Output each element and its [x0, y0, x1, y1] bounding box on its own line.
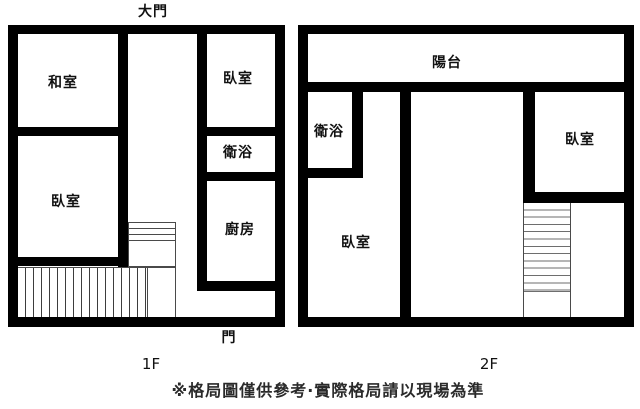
1f-room-label-kitchen: 廚房	[225, 219, 255, 239]
1f-stair-upper-run	[128, 222, 176, 267]
2f-outer-wall-right	[624, 25, 634, 327]
1f-stair-lower-run	[18, 267, 176, 317]
2f-stair	[523, 203, 571, 317]
2f-wall-balcony-bottom	[308, 82, 624, 92]
2f-wall-bedroom-right-bottom	[523, 192, 634, 203]
2f-stair-treads	[524, 203, 570, 292]
1f-outer-wall-left	[8, 25, 18, 327]
1f-room-label-bathroom: 衛浴	[223, 142, 253, 162]
1f-corridor-wall-left	[118, 34, 128, 267]
2f-floor-label: 2F	[480, 355, 498, 373]
1f-room-label-bedroom-top: 臥室	[223, 68, 253, 88]
1f-outer-wall-top	[8, 25, 285, 34]
1f-door-label: 門	[222, 327, 237, 347]
2f-outer-wall-top	[298, 25, 634, 34]
floor-plan-image: 大門 和室 臥室 衛浴 臥室 廚房 門 1F 陽台 衛浴 臥室 臥室 2F ※格…	[0, 0, 640, 409]
1f-corridor-wall-right	[197, 34, 207, 291]
1f-room-label-bedroom-left: 臥室	[51, 191, 81, 211]
1f-wall-bedroom-left-bottom	[18, 257, 128, 266]
2f-room-label-balcony: 陽台	[432, 52, 462, 72]
disclaimer-text: ※格局圖僅供參考·實際格局請以現場為準	[172, 377, 485, 401]
2f-room-label-bedroom-right: 臥室	[565, 129, 595, 149]
2f-wall-central	[400, 92, 411, 317]
2f-wall-bathroom-bottom	[298, 168, 363, 178]
2f-wall-bathroom-right	[352, 92, 363, 178]
1f-floor-label: 1F	[142, 355, 160, 373]
1f-stair-hatch	[18, 268, 148, 317]
2f-wall-bedroom-right-left	[523, 92, 535, 192]
1f-wall-kitchen-bottom	[197, 281, 285, 291]
1f-entrance-label: 大門	[138, 1, 168, 21]
1f-room-label-tatami: 和室	[48, 72, 78, 92]
1f-wall-bathroom-bottom	[197, 172, 285, 181]
1f-wall-tatami-bottom	[18, 127, 128, 136]
1f-wall-bedroom-top-bottom	[197, 127, 285, 136]
1f-outer-wall-bottom	[8, 317, 285, 327]
2f-outer-wall-bottom	[298, 317, 634, 327]
2f-room-label-bathroom: 衛浴	[314, 121, 344, 141]
1f-stair-treads	[129, 223, 175, 242]
2f-room-label-bedroom-left: 臥室	[341, 232, 371, 252]
